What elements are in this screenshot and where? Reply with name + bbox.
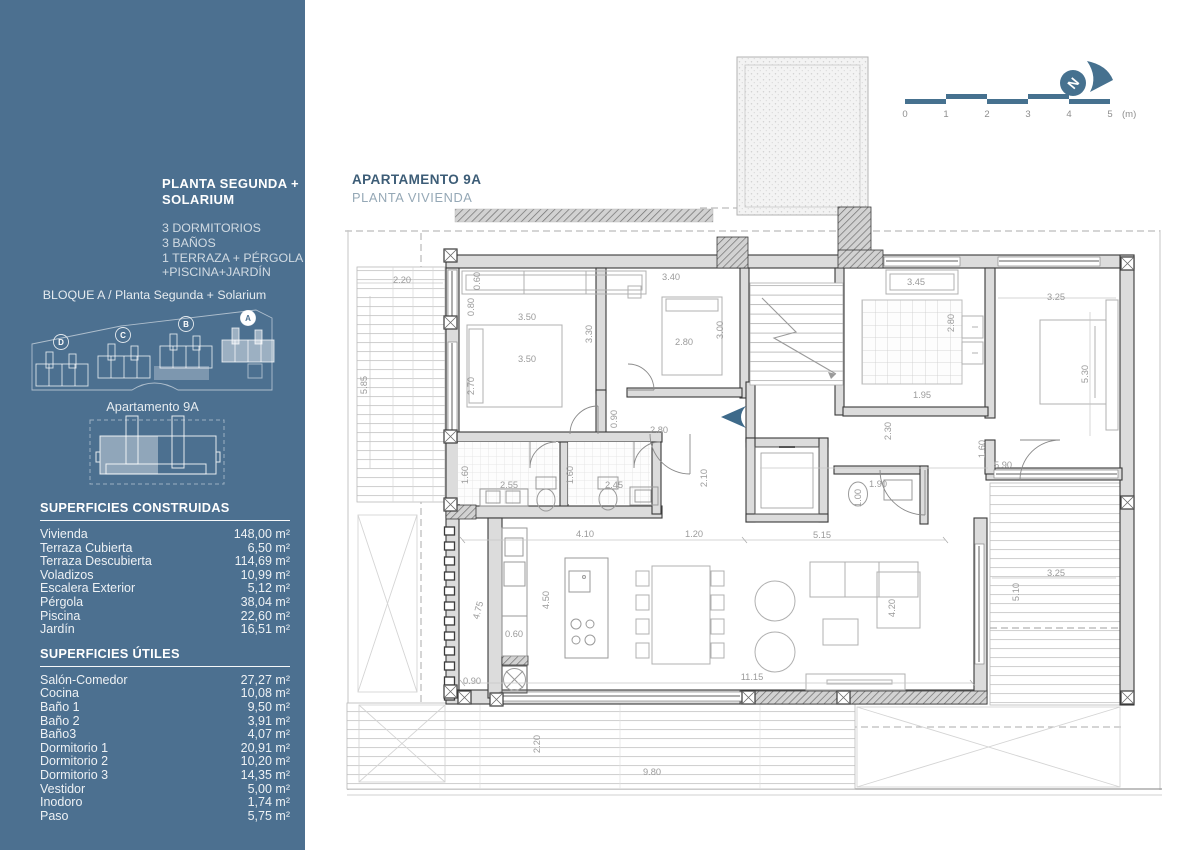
dimension-label: 3.00 bbox=[715, 321, 725, 339]
dimension-label: 2.20 bbox=[532, 735, 542, 753]
surface-row: Salón-Comedor27,27 m² bbox=[40, 674, 290, 688]
dimension-label: 2.80 bbox=[675, 337, 693, 347]
svg-text:5: 5 bbox=[1107, 109, 1112, 120]
surface-label: Vivienda bbox=[40, 528, 88, 542]
surface-row: Vestidor5,00 m² bbox=[40, 783, 290, 797]
surface-row: Dormitorio 314,35 m² bbox=[40, 769, 290, 783]
surface-row: Voladizos10,99 m² bbox=[40, 569, 290, 583]
block-label: BLOQUE A / Planta Segunda + Solarium bbox=[14, 288, 295, 302]
wardrobe-dorm2 bbox=[462, 271, 646, 294]
svg-text:D: D bbox=[58, 338, 64, 347]
unit-tower-2 bbox=[172, 416, 184, 468]
surface-label: Terraza Cubierta bbox=[40, 542, 132, 556]
terrace-south bbox=[347, 703, 855, 789]
surface-value: 148,00 m² bbox=[234, 528, 290, 542]
surface-label: Paso bbox=[40, 810, 69, 824]
surface-row: Dormitorio 120,91 m² bbox=[40, 742, 290, 756]
surface-value: 16,51 m² bbox=[241, 623, 290, 637]
dimension-label: 2.55 bbox=[500, 480, 518, 490]
dimension-label: 2.10 bbox=[699, 469, 709, 487]
surface-label: Inodoro bbox=[40, 796, 82, 810]
feature-line: 1 TERRAZA + PÉRGOLA bbox=[162, 251, 303, 266]
north-compass-icon: N bbox=[1060, 61, 1113, 96]
sidebar-title-line2: SOLARIUM bbox=[162, 192, 299, 208]
surface-value: 6,50 m² bbox=[248, 542, 290, 556]
dimension-label: 1.20 bbox=[685, 529, 703, 539]
surface-label: Jardín bbox=[40, 623, 75, 637]
surface-row: Dormitorio 210,20 m² bbox=[40, 755, 290, 769]
feature-list: 3 DORMITORIOS3 BAÑOS1 TERRAZA + PÉRGOLA+… bbox=[162, 221, 303, 280]
surface-row: Escalera Exterior5,12 m² bbox=[40, 582, 290, 596]
surface-label: Cocina bbox=[40, 687, 79, 701]
dimension-label: 3.30 bbox=[584, 325, 594, 343]
dimension-label: 3.40 bbox=[662, 272, 680, 282]
sink-wc bbox=[884, 480, 912, 500]
surface-row: Inodoro1,74 m² bbox=[40, 796, 290, 810]
surface-row: Pérgola38,04 m² bbox=[40, 596, 290, 610]
dimension-label: 4.75 bbox=[471, 600, 485, 620]
dimension-label: 2.80 bbox=[946, 314, 956, 332]
tv-unit bbox=[806, 674, 905, 690]
surface-value: 9,50 m² bbox=[248, 701, 290, 715]
dimension-label: 11.15 bbox=[741, 672, 764, 682]
surface-row: Paso5,75 m² bbox=[40, 810, 290, 824]
surface-value: 10,08 m² bbox=[241, 687, 290, 701]
site-plan-diagram: DCBA bbox=[26, 302, 280, 398]
surface-label: Dormitorio 3 bbox=[40, 769, 108, 783]
dimension-label: 2.30 bbox=[883, 422, 893, 440]
surface-value: 10,99 m² bbox=[241, 569, 290, 583]
surface-row: Baño34,07 m² bbox=[40, 728, 290, 742]
dimension-label: 2.45 bbox=[605, 480, 623, 490]
dimension-label: 1.60 bbox=[565, 466, 575, 484]
dimension-label: 3.50 bbox=[518, 312, 536, 322]
surface-value: 20,91 m² bbox=[241, 742, 290, 756]
surface-value: 3,91 m² bbox=[248, 715, 290, 729]
dimension-label: 1.60 bbox=[460, 466, 470, 484]
sidebar-title: PLANTA SEGUNDA + SOLARIUM bbox=[162, 176, 299, 208]
svg-text:(m): (m) bbox=[1122, 109, 1136, 120]
dimension-label: 1.90 bbox=[869, 479, 887, 489]
surface-label: Baño3 bbox=[40, 728, 76, 742]
sidebar-panel: PLANTA SEGUNDA + SOLARIUM 3 DORMITORIOS3… bbox=[0, 0, 305, 850]
unit-highlight bbox=[100, 436, 158, 474]
scale-bar-labels: 012345(m) bbox=[902, 109, 1136, 120]
bed-master bbox=[1040, 320, 1106, 404]
surface-row: Vivienda148,00 m² bbox=[40, 528, 290, 542]
feature-line: +PISCINA+JARDÍN bbox=[162, 265, 303, 280]
surface-row: Baño 23,91 m² bbox=[40, 715, 290, 729]
block-c-shape bbox=[98, 344, 150, 378]
surface-row: Jardín16,51 m² bbox=[40, 623, 290, 637]
stair-tower bbox=[737, 57, 868, 215]
dimension-label: 0.60 bbox=[505, 629, 523, 639]
surface-value: 14,35 m² bbox=[241, 769, 290, 783]
dimension-label: 0.90 bbox=[463, 676, 481, 686]
scale-bar bbox=[905, 94, 1110, 104]
dimension-label: 3.50 bbox=[518, 354, 536, 364]
surface-value: 4,07 m² bbox=[248, 728, 290, 742]
sofa bbox=[810, 562, 918, 597]
terrace-decking bbox=[347, 267, 1120, 789]
dimension-label: 4.20 bbox=[887, 599, 897, 617]
surface-label: Pérgola bbox=[40, 596, 83, 610]
block-a-shape-highlighted bbox=[222, 328, 274, 362]
svg-text:3: 3 bbox=[1025, 109, 1030, 120]
dimension-label: 1.00 bbox=[853, 489, 863, 507]
table-construidas: Vivienda148,00 m²Terraza Cubierta6,50 m²… bbox=[40, 528, 290, 637]
dimension-label: 0.60 bbox=[472, 272, 482, 290]
site-pool-shape bbox=[154, 366, 209, 380]
dimension-label: 3.25 bbox=[1047, 568, 1065, 578]
surface-label: Piscina bbox=[40, 610, 80, 624]
surface-row: Piscina22,60 m² bbox=[40, 610, 290, 624]
dimension-label: 3.45 bbox=[907, 277, 925, 287]
surface-label: Baño 1 bbox=[40, 701, 80, 715]
svg-text:4: 4 bbox=[1066, 109, 1071, 120]
elevator bbox=[755, 447, 819, 514]
feature-line: 3 DORMITORIOS bbox=[162, 221, 303, 236]
dimension-label: 5.30 bbox=[1080, 365, 1090, 383]
terrace-east bbox=[990, 483, 1120, 705]
apartment-unit-diagram bbox=[86, 412, 230, 490]
closet-grid bbox=[862, 300, 962, 384]
dimension-label: 1.60 bbox=[977, 440, 987, 458]
coffee-table bbox=[823, 619, 858, 645]
surface-value: 5,00 m² bbox=[248, 783, 290, 797]
dimension-label: 1.95 bbox=[913, 390, 931, 400]
bed-dorm2 bbox=[467, 325, 562, 407]
surface-value: 10,20 m² bbox=[241, 755, 290, 769]
dimension-label: 5.10 bbox=[1011, 583, 1021, 601]
dimension-label: 5.90 bbox=[994, 460, 1012, 470]
table-heading-utiles: SUPERFICIES ÚTILES bbox=[40, 646, 290, 667]
svg-text:C: C bbox=[120, 331, 126, 340]
svg-text:A: A bbox=[245, 314, 251, 323]
surface-label: Salón-Comedor bbox=[40, 674, 128, 688]
svg-text:B: B bbox=[183, 320, 189, 329]
site-small-structure bbox=[248, 364, 262, 378]
floor-plan: 012345(m) N bbox=[305, 0, 1200, 850]
dimension-label: 3.25 bbox=[1047, 292, 1065, 302]
overhang-hatch-band bbox=[455, 209, 713, 222]
surface-label: Dormitorio 2 bbox=[40, 755, 108, 769]
table-heading-construidas: SUPERFICIES CONSTRUIDAS bbox=[40, 500, 290, 521]
dimension-label: 2.20 bbox=[393, 275, 411, 285]
svg-text:0: 0 bbox=[902, 109, 907, 120]
block-d-shape bbox=[36, 352, 88, 386]
surface-value: 27,27 m² bbox=[241, 674, 290, 688]
surface-label: Baño 2 bbox=[40, 715, 80, 729]
surface-label: Terraza Descubierta bbox=[40, 555, 152, 569]
dimension-label: 4.50 bbox=[541, 591, 551, 609]
table-utiles: Salón-Comedor27,27 m²Cocina10,08 m²Baño … bbox=[40, 674, 290, 824]
surface-label: Voladizos bbox=[40, 569, 94, 583]
surface-value: 1,74 m² bbox=[248, 796, 290, 810]
staircase bbox=[750, 283, 843, 385]
compass-arrow bbox=[1087, 61, 1113, 92]
surface-row: Terraza Descubierta114,69 m² bbox=[40, 555, 290, 569]
bed-dorm3 bbox=[662, 297, 722, 375]
surface-row: Baño 19,50 m² bbox=[40, 701, 290, 715]
dimension-label: 0.80 bbox=[466, 298, 476, 316]
surface-value: 114,69 m² bbox=[235, 555, 290, 569]
block-b-shape bbox=[160, 334, 212, 368]
dimension-label: 2.80 bbox=[650, 425, 668, 435]
dimension-label: 5.85 bbox=[359, 376, 369, 394]
dimension-label: 4.10 bbox=[576, 529, 594, 539]
dimension-label: 0.90 bbox=[609, 410, 619, 428]
surface-row: Cocina10,08 m² bbox=[40, 687, 290, 701]
entry-arrow bbox=[721, 406, 746, 428]
sidebar-title-line1: PLANTA SEGUNDA + bbox=[162, 176, 299, 192]
surface-tables: SUPERFICIES CONSTRUIDAS Vivienda148,00 m… bbox=[40, 500, 290, 832]
dining-table bbox=[652, 566, 710, 664]
surface-value: 22,60 m² bbox=[241, 610, 290, 624]
dimension-label: 2.70 bbox=[466, 377, 476, 395]
dimension-label: 9.80 bbox=[643, 767, 661, 777]
svg-text:1: 1 bbox=[943, 109, 948, 120]
surface-value: 5,75 m² bbox=[248, 810, 290, 824]
armchair-1 bbox=[755, 581, 795, 621]
surface-label: Vestidor bbox=[40, 783, 85, 797]
page: { "sidebar": { "title_lines": ["PLANTA S… bbox=[0, 0, 1200, 850]
surface-label: Escalera Exterior bbox=[40, 582, 135, 596]
surface-row: Terraza Cubierta6,50 m² bbox=[40, 542, 290, 556]
feature-line: 3 BAÑOS bbox=[162, 236, 303, 251]
svg-text:2: 2 bbox=[984, 109, 989, 120]
surface-value: 38,04 m² bbox=[241, 596, 290, 610]
surface-value: 5,12 m² bbox=[248, 582, 290, 596]
armchair-2 bbox=[755, 632, 795, 672]
surface-label: Dormitorio 1 bbox=[40, 742, 108, 756]
dimension-label: 5.15 bbox=[813, 530, 831, 540]
